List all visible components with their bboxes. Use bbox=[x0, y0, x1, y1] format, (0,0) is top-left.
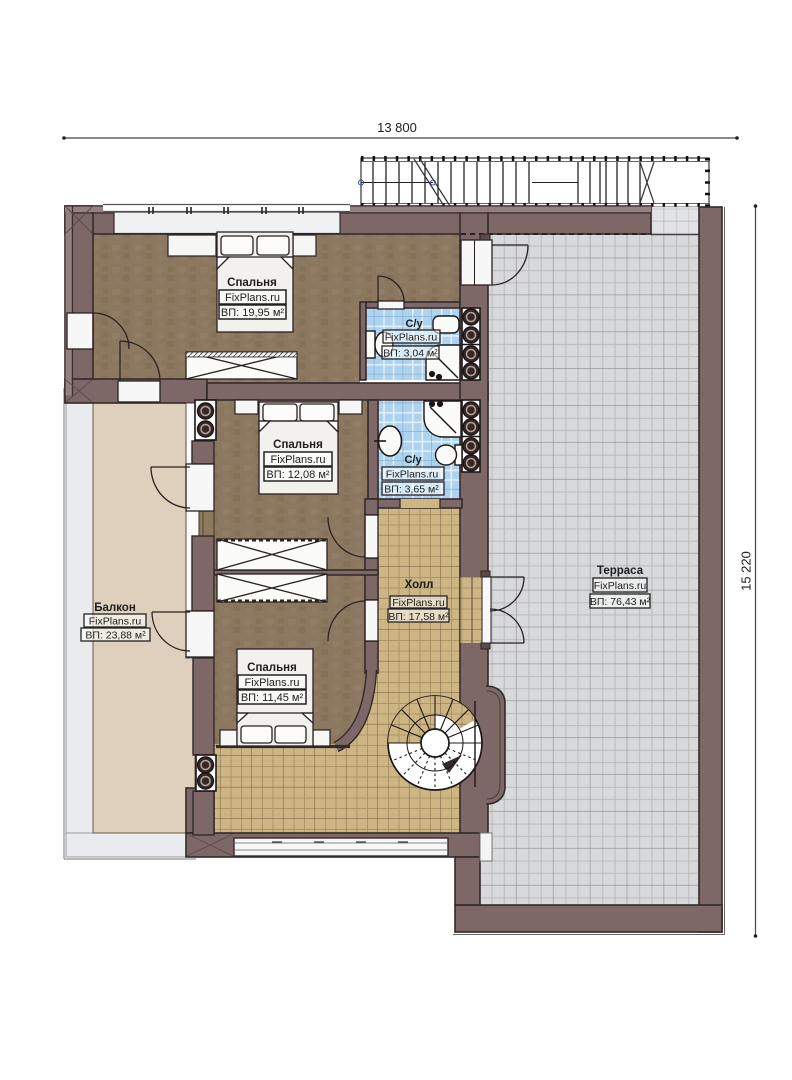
svg-text:ВП: 3,65 м²: ВП: 3,65 м² bbox=[384, 484, 439, 496]
svg-text:15 220: 15 220 bbox=[739, 551, 754, 591]
svg-text:Спальня: Спальня bbox=[247, 662, 297, 674]
svg-text:С/у: С/у bbox=[404, 454, 422, 466]
svg-text:FixPlans.ru: FixPlans.ru bbox=[386, 469, 439, 481]
svg-text:Холл: Холл bbox=[405, 579, 434, 591]
svg-text:FixPlans.ru: FixPlans.ru bbox=[385, 332, 438, 344]
svg-text:Балкон: Балкон bbox=[94, 602, 136, 614]
svg-text:FixPlans.ru: FixPlans.ru bbox=[225, 292, 280, 304]
svg-text:ВП: 76,43 м²: ВП: 76,43 м² bbox=[590, 596, 651, 608]
svg-text:ВП: 19,95 м²: ВП: 19,95 м² bbox=[221, 307, 285, 319]
svg-text:ВП: 17,58 м²: ВП: 17,58 м² bbox=[388, 611, 449, 623]
svg-text:FixPlans.ru: FixPlans.ru bbox=[392, 597, 445, 609]
svg-text:ВП: 11,45 м²: ВП: 11,45 м² bbox=[241, 692, 304, 704]
svg-text:FixPlans.ru: FixPlans.ru bbox=[244, 677, 299, 689]
svg-text:FixPlans.ru: FixPlans.ru bbox=[89, 616, 142, 628]
svg-text:FixPlans.ru: FixPlans.ru bbox=[270, 454, 325, 466]
svg-text:Спальня: Спальня bbox=[273, 439, 323, 451]
svg-text:13 800: 13 800 bbox=[377, 120, 417, 135]
svg-text:Терраса: Терраса bbox=[597, 565, 644, 577]
svg-text:ВП: 3,04 м²: ВП: 3,04 м² bbox=[383, 348, 438, 360]
svg-text:ВП: 12,08 м²: ВП: 12,08 м² bbox=[266, 469, 330, 481]
svg-text:Спальня: Спальня bbox=[227, 277, 277, 289]
svg-text:FixPlans.ru: FixPlans.ru bbox=[594, 580, 647, 592]
svg-text:С/у: С/у bbox=[405, 318, 423, 330]
svg-text:ВП: 23,88 м²: ВП: 23,88 м² bbox=[85, 630, 146, 642]
